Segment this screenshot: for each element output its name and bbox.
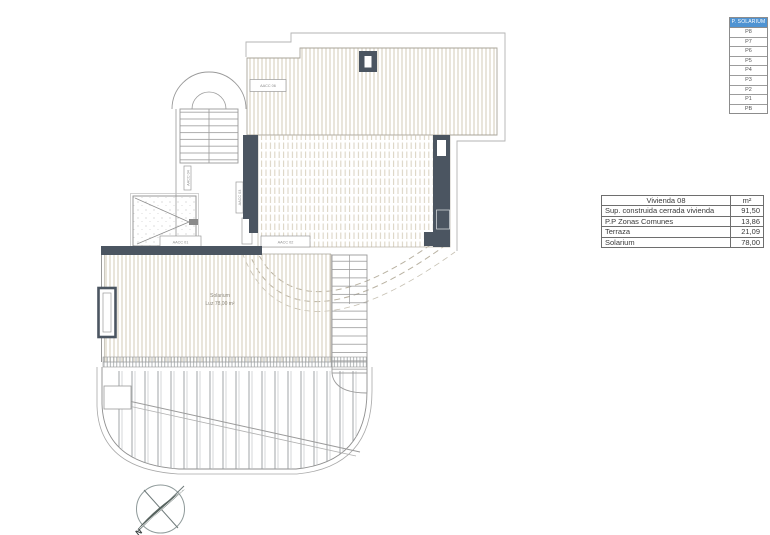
area-row-comunes-value: 13,86: [731, 216, 764, 226]
wall-left-vertical: [243, 135, 258, 219]
curved-terrace: [97, 367, 372, 474]
compass-rose: N: [134, 485, 185, 535]
solarium-label-line2: Luz 78,00 m²: [205, 301, 235, 307]
area-row-cerrada-value: 91,50: [731, 206, 764, 216]
floor-row-p4: P4: [730, 66, 767, 76]
area-row-solarium: Solarium 78,00: [602, 237, 764, 247]
area-table-header-row: Vivienda 08 m²: [602, 196, 764, 206]
floor-row-p5: P5: [730, 57, 767, 67]
floor-row-p8: P8: [730, 28, 767, 38]
wall-horizontal: [101, 246, 262, 255]
floor-row-p2: P2: [730, 86, 767, 96]
area-row-solarium-label: Solarium: [602, 237, 731, 247]
solarium-label-line1: Solarium: [210, 293, 230, 299]
floor-row-p7: P7: [730, 38, 767, 48]
area-row-terraza-value: 21,09: [731, 227, 764, 237]
unit-label-acc04: AACC 04: [187, 170, 191, 186]
terrace-planter-box: [104, 386, 131, 409]
elevator-door-marker: [189, 219, 198, 225]
floor-row-p1: P1: [730, 95, 767, 105]
wall-window: [437, 140, 446, 156]
area-row-terraza-label: Terraza: [602, 227, 731, 237]
area-row-comunes-label: P.P Zonas Comunes: [602, 216, 731, 226]
floor-row-p6: P6: [730, 47, 767, 57]
area-table-unit: m²: [731, 196, 764, 206]
right-stair: [332, 255, 367, 393]
floor-row-p3: P3: [730, 76, 767, 86]
area-row-comunes: P.P Zonas Comunes 13,86: [602, 216, 764, 226]
area-row-solarium-value: 78,00: [731, 237, 764, 247]
floor-selector-header: P. SOLARIUM: [730, 18, 767, 28]
area-row-cerrada: Sup. construida cerrada vivienda 91,50: [602, 206, 764, 216]
area-table-title: Vivienda 08: [602, 196, 731, 206]
unit-label-acc06: AACC 06: [260, 84, 276, 88]
area-table: Vivienda 08 m² Sup. construida cerrada v…: [601, 195, 764, 248]
floor-row-pb: PB: [730, 105, 767, 114]
solarium-deck: [102, 254, 368, 367]
unit-label-acc03: AACC 03: [238, 190, 242, 206]
area-row-terraza: Terraza 21,09: [602, 227, 764, 237]
drawing-sheet: Solarium Luz 78,00 m² AACC 06 AA: [0, 0, 770, 535]
unit-label-acc01: AACC 01: [173, 241, 189, 245]
upper-roof-deck: [247, 48, 497, 247]
area-row-cerrada-label: Sup. construida cerrada vivienda: [602, 206, 731, 216]
left-window: [99, 288, 116, 337]
compass-north-label: N: [134, 527, 144, 535]
floor-selector-table: P. SOLARIUM P8 P7 P6 P5 P4 P3 P2 P1 PB: [729, 17, 768, 114]
floor-plan: Solarium Luz 78,00 m² AACC 06 AA: [0, 0, 770, 535]
unit-label-acc02: AACC 02: [278, 241, 294, 245]
